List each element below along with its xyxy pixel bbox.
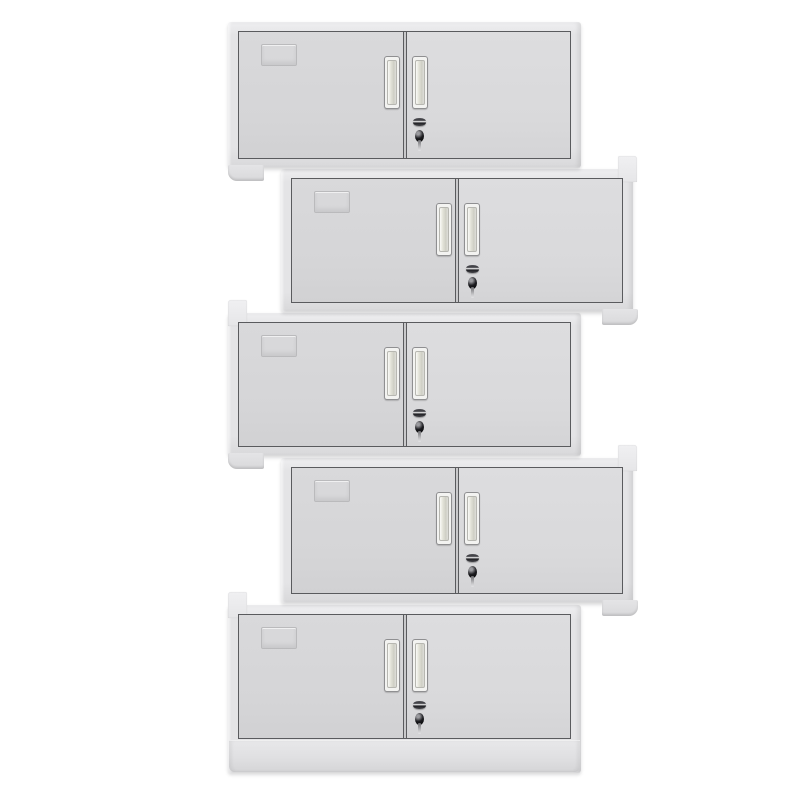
label-holder [261,335,297,357]
door-seam [455,179,459,302]
door-handle-right [464,203,480,256]
door-lock [465,265,479,298]
cabinet-unit-1 [228,22,581,168]
door-seam [455,468,459,593]
cabinet-doors [291,467,623,594]
door-lock [413,118,427,151]
key-stem [471,576,474,587]
cabinet-unit-4 [281,458,633,603]
right-door [405,32,571,158]
cabinet-doors [291,178,623,303]
key-stem [471,287,474,298]
cabinet-unit-2 [281,169,633,312]
cabinet-foot [602,309,638,325]
lock-cover-icon [466,265,479,273]
lock-cover-icon [413,701,426,709]
door-handle-left [384,347,400,400]
cabinet-foot [602,600,638,616]
lock-cover-icon [466,554,479,562]
product-image-canvas [0,0,800,800]
right-door [457,468,622,593]
cabinet-foot [228,453,264,469]
key-stem [418,140,421,151]
door-handle-left [384,56,400,109]
label-holder [261,44,297,66]
label-holder [261,627,297,649]
lock-cover-icon [413,409,426,417]
right-door [405,323,571,446]
key-stem [418,723,421,734]
door-handle-right [412,639,428,692]
door-seam [403,615,407,738]
door-handle-left [436,492,452,545]
door-handle-right [412,56,428,109]
door-seam [403,32,407,158]
door-handle-left [384,639,400,692]
cabinet-plinth [229,740,580,772]
door-handle-right [464,492,480,545]
cabinet-doors [238,322,571,447]
door-handle-right [412,347,428,400]
door-lock [413,409,427,442]
cabinet-doors [238,614,571,739]
right-door [457,179,622,302]
key-stem [418,431,421,442]
cabinet-foot [228,165,264,181]
cabinet-unit-5 [228,605,581,773]
label-holder [314,191,350,213]
right-door [405,615,571,738]
cabinet-unit-3 [228,313,581,456]
door-seam [403,323,407,446]
door-lock [465,554,479,587]
label-holder [314,480,350,502]
door-handle-left [436,203,452,256]
lock-cover-icon [413,118,426,126]
door-lock [413,701,427,734]
cabinet-doors [238,31,571,159]
